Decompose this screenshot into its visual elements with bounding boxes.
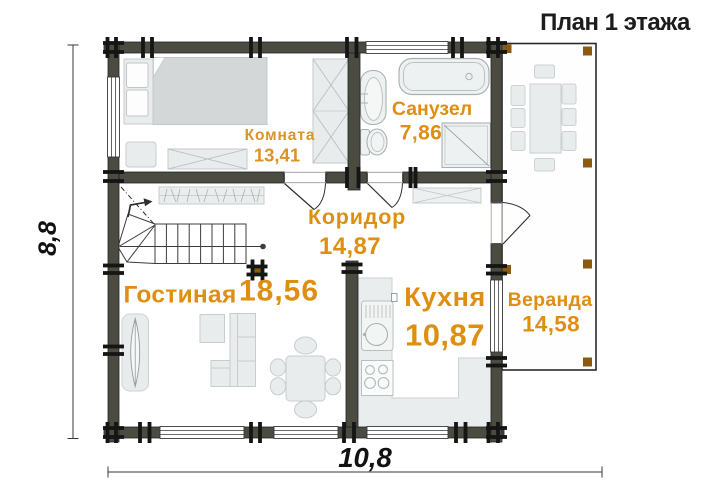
svg-text:14,58: 14,58: [522, 312, 580, 337]
svg-text:7,86: 7,86: [400, 122, 442, 145]
svg-text:18,56: 18,56: [239, 275, 319, 308]
svg-text:Коридор: Коридор: [308, 205, 406, 229]
svg-text:Комната: Комната: [245, 127, 316, 144]
svg-text:Санузел: Санузел: [392, 98, 472, 120]
svg-text:Веранда: Веранда: [508, 289, 593, 311]
svg-text:План 1 этажа: План 1 этажа: [540, 9, 691, 36]
svg-text:8,8: 8,8: [34, 221, 62, 256]
svg-text:10,87: 10,87: [405, 318, 485, 353]
svg-text:13,41: 13,41: [254, 145, 300, 166]
svg-text:10,8: 10,8: [338, 442, 392, 473]
svg-text:14,87: 14,87: [319, 233, 381, 260]
svg-text:Кухня: Кухня: [404, 282, 485, 312]
svg-text:Гостиная: Гостиная: [123, 282, 236, 309]
